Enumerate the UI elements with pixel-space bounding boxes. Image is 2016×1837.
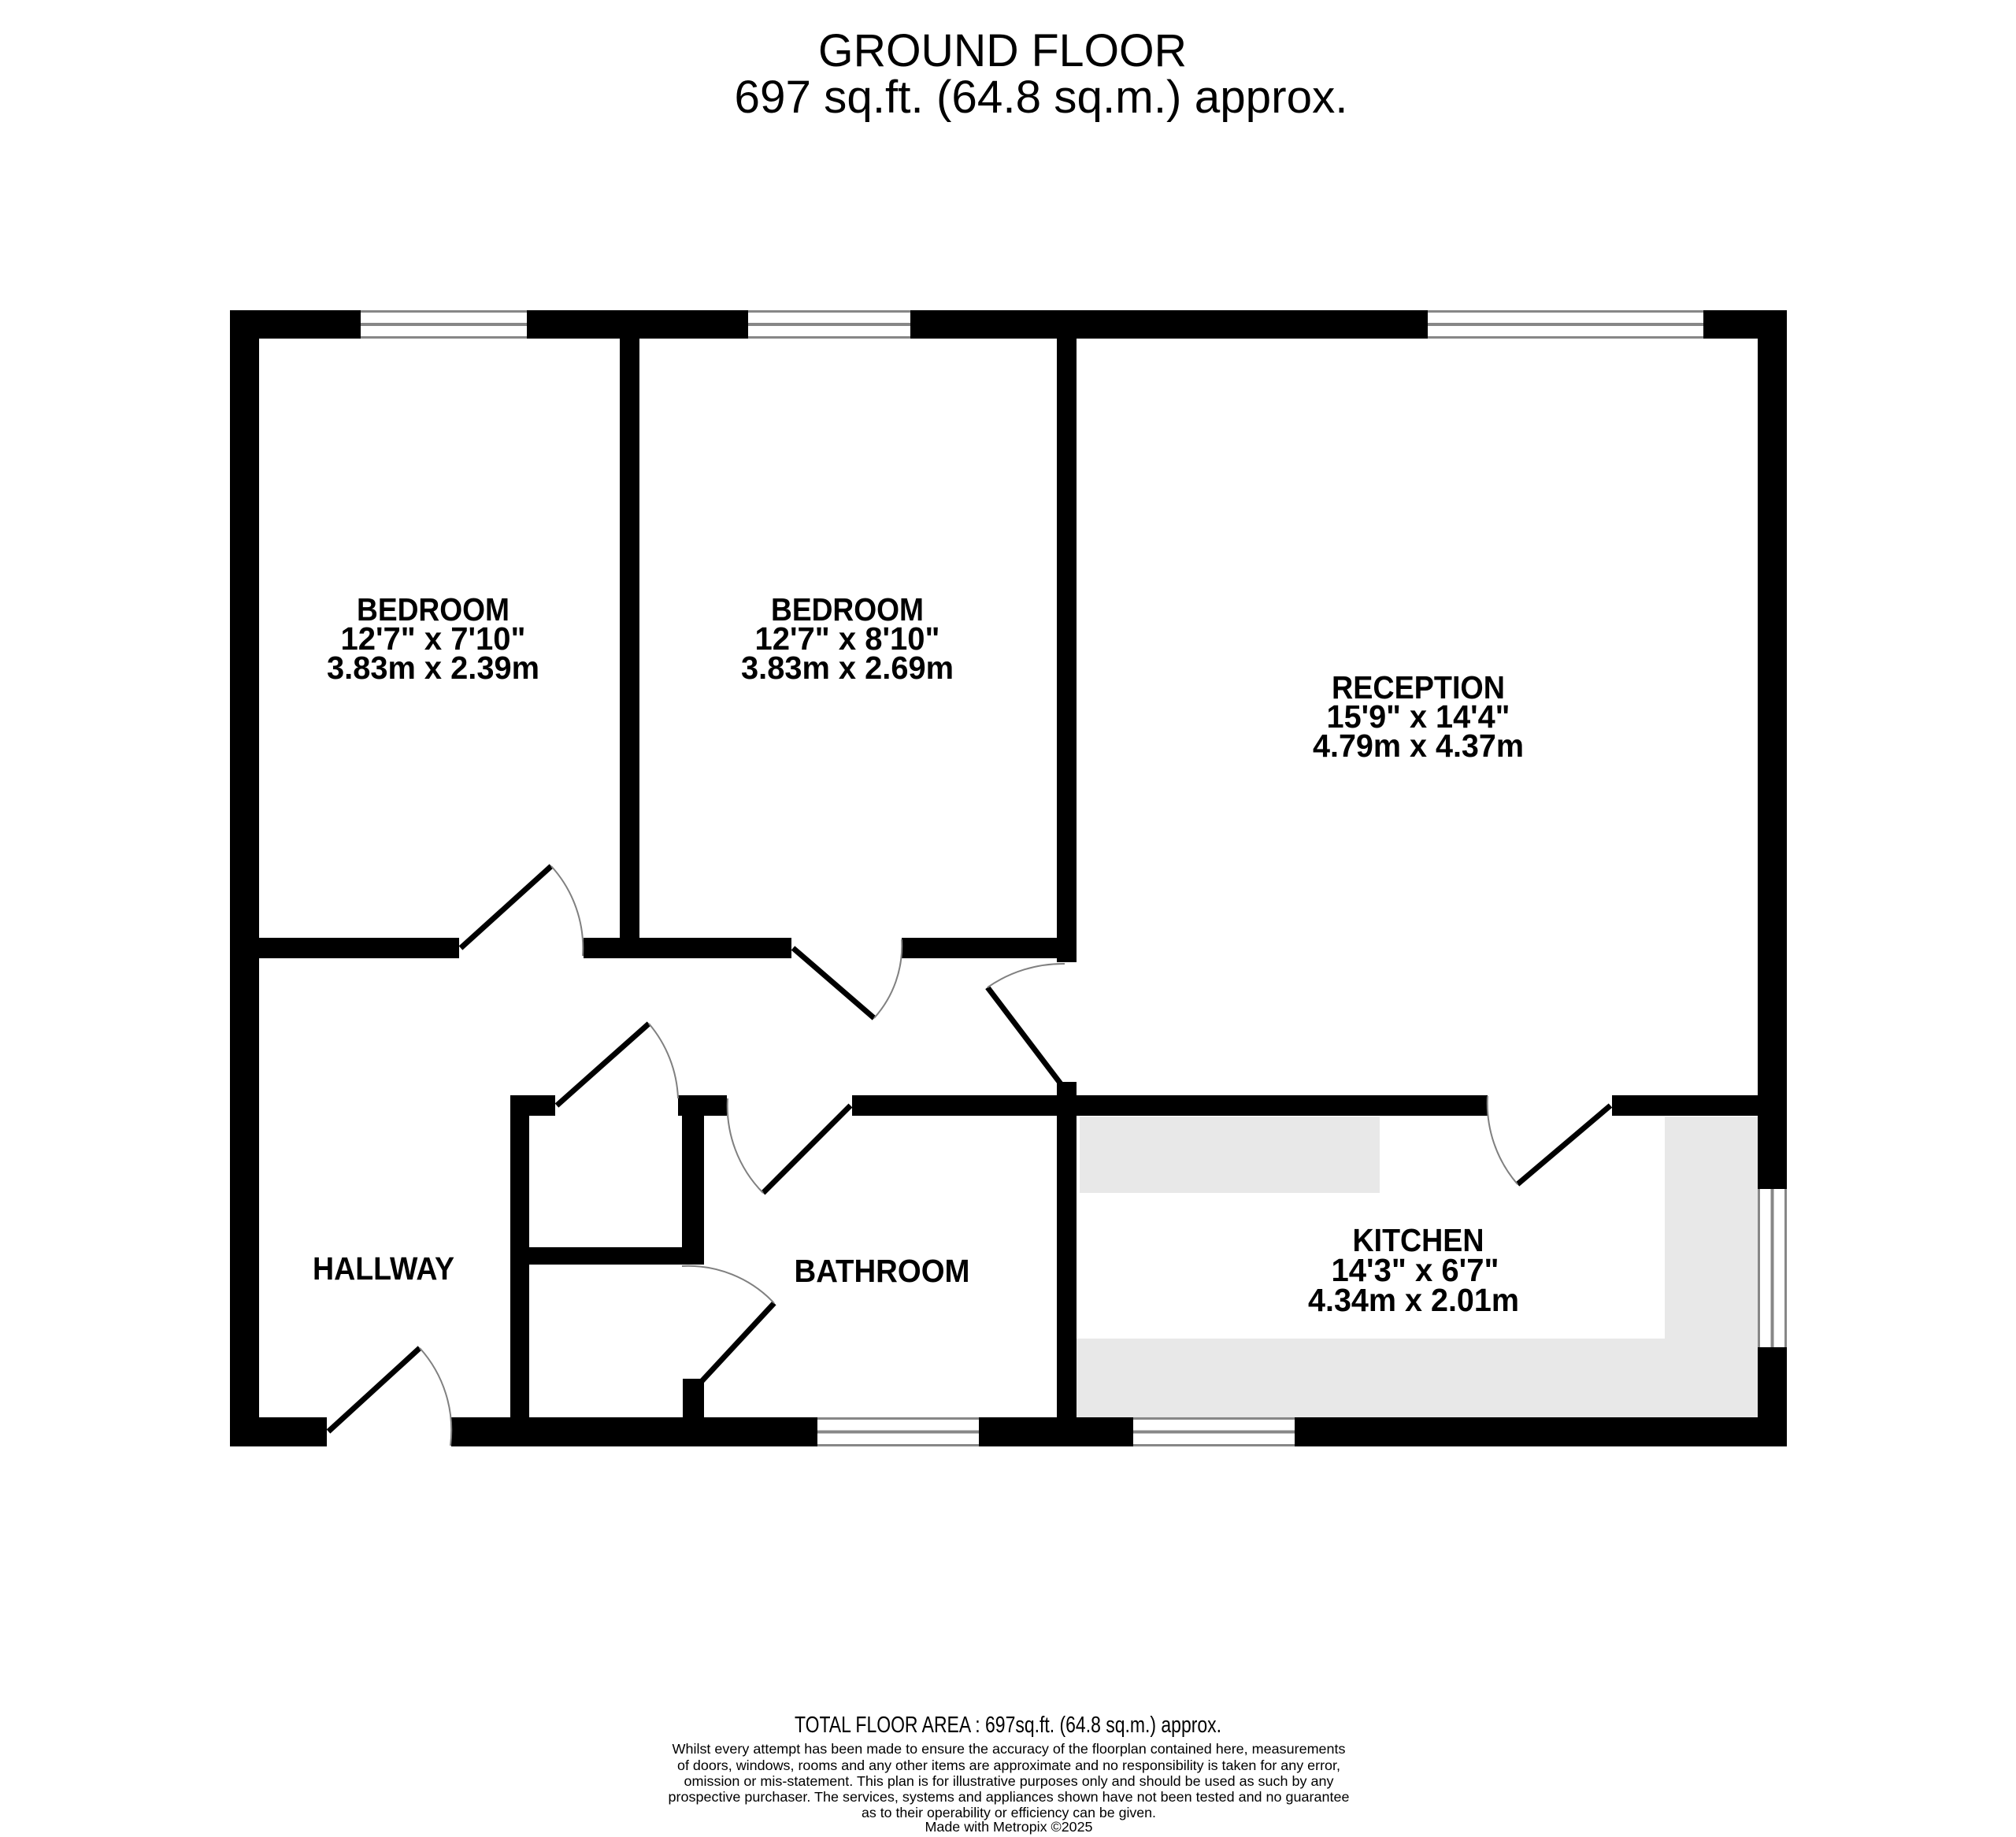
svg-text:of doors, windows, rooms and a: of doors, windows, rooms and any other i… — [677, 1757, 1340, 1773]
svg-text:as to their operability or eff: as to their operability or efficiency ca… — [862, 1805, 1156, 1820]
svg-text:prospective purchaser. The ser: prospective purchaser. The services, sys… — [669, 1789, 1350, 1805]
svg-text:BATHROOM: BATHROOM — [795, 1253, 970, 1289]
svg-text:Made with Metropix ©2025: Made with Metropix ©2025 — [925, 1819, 1093, 1835]
svg-text:697 sq.ft. (64.8 sq.m.) approx: 697 sq.ft. (64.8 sq.m.) approx. — [735, 72, 1348, 123]
svg-text:GROUND FLOOR: GROUND FLOOR — [818, 25, 1187, 76]
svg-text:4.79m x 4.37m: 4.79m x 4.37m — [1313, 728, 1524, 764]
svg-text:4.34m x 2.01m: 4.34m x 2.01m — [1308, 1282, 1519, 1318]
svg-text:TOTAL FLOOR AREA : 697sq.ft. (: TOTAL FLOOR AREA : 697sq.ft. (64.8 sq.m.… — [795, 1713, 1221, 1738]
svg-text:HALLWAY: HALLWAY — [313, 1250, 454, 1287]
svg-text:3.83m x 2.39m: 3.83m x 2.39m — [327, 650, 539, 686]
svg-text:Whilst every attempt has been: Whilst every attempt has been made to en… — [673, 1741, 1346, 1757]
svg-text:3.83m x 2.69m: 3.83m x 2.69m — [741, 650, 954, 686]
svg-text:omission or mis-statement. Thi: omission or mis-statement. This plan is … — [684, 1773, 1334, 1789]
